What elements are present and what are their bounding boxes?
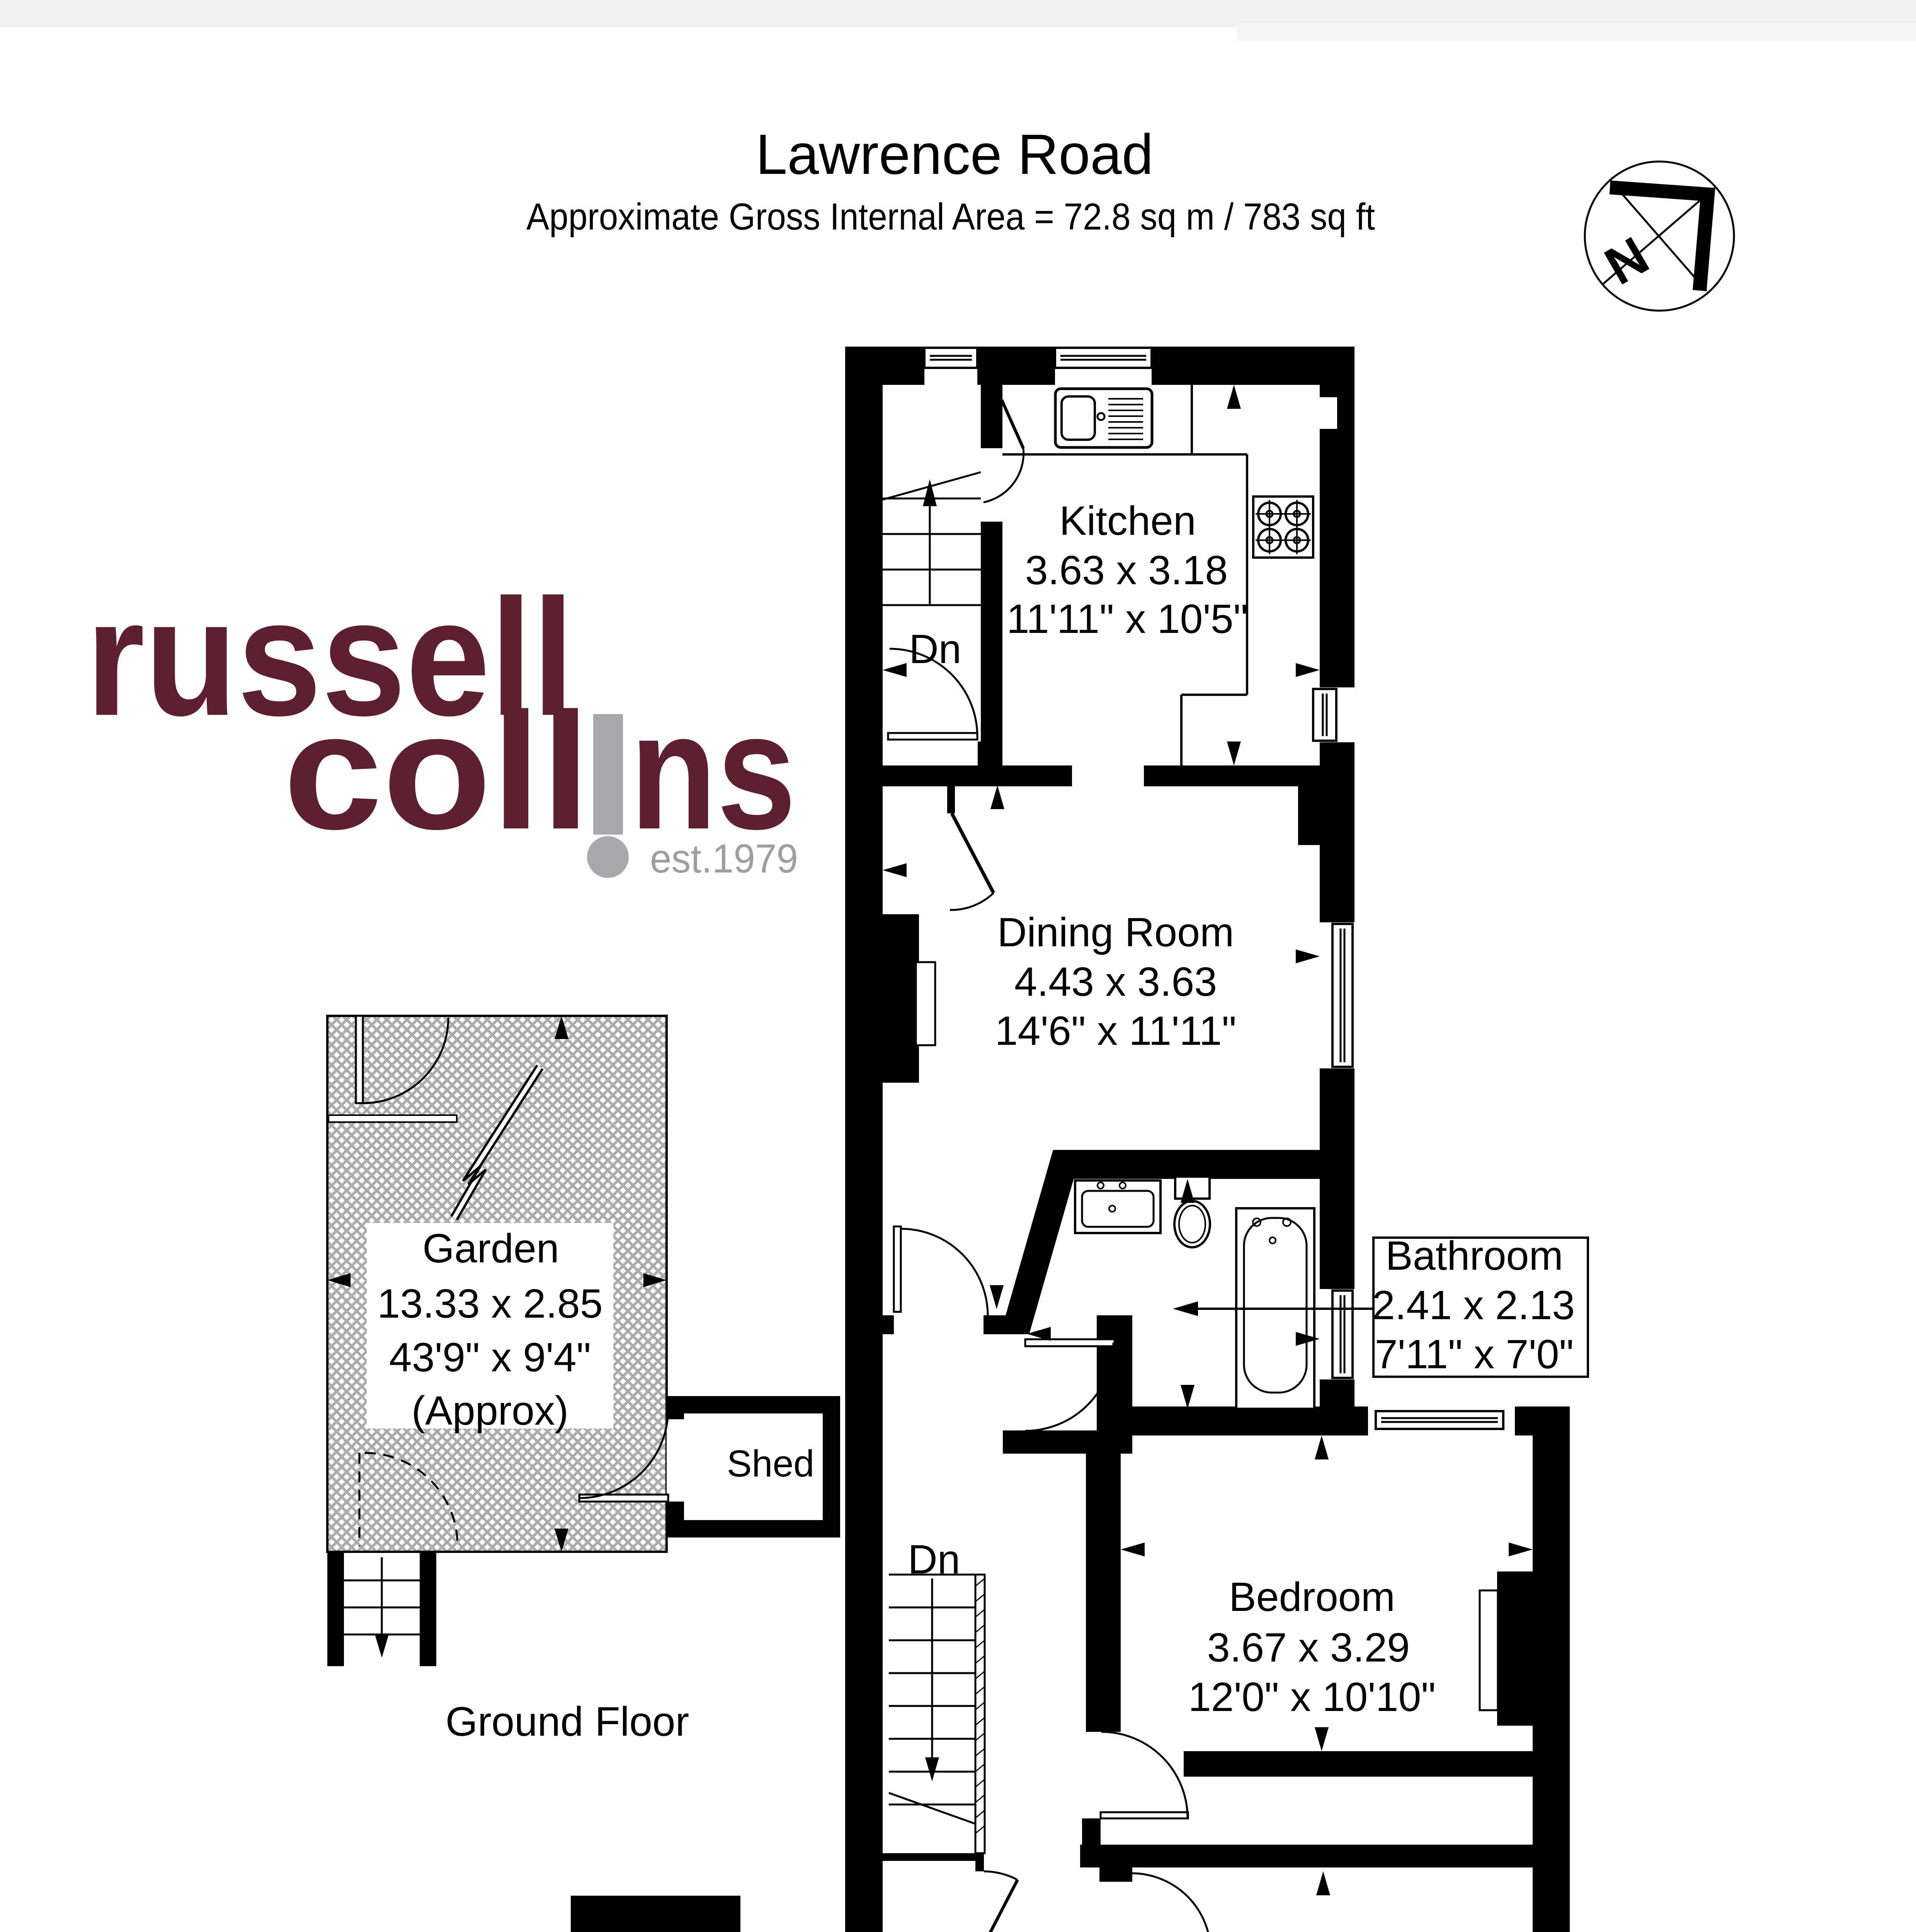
- svg-text:Kitchen: Kitchen: [1059, 498, 1196, 544]
- svg-text:2.41 x 2.13: 2.41 x 2.13: [1372, 1282, 1575, 1328]
- svg-text:Approximate Gross Internal Are: Approximate Gross Internal Area = 72.8 s…: [526, 196, 1375, 238]
- svg-text:Ground Floor: Ground Floor: [446, 1698, 689, 1745]
- svg-text:3.67 x 3.29: 3.67 x 3.29: [1207, 1625, 1410, 1670]
- svg-text:43'9" x 9'4": 43'9" x 9'4": [389, 1335, 591, 1380]
- svg-text:Shed: Shed: [727, 1442, 815, 1485]
- svg-text:Dn: Dn: [908, 1537, 960, 1582]
- svg-text:13.33 x 2.85: 13.33 x 2.85: [377, 1281, 602, 1327]
- svg-text:7'11" x 7'0": 7'11" x 7'0": [1375, 1332, 1574, 1377]
- svg-text:Bedroom: Bedroom: [1229, 1574, 1395, 1620]
- svg-text:12'0" x 10'10": 12'0" x 10'10": [1188, 1674, 1436, 1720]
- svg-text:Garden: Garden: [422, 1226, 559, 1271]
- svg-text:coll: coll: [283, 679, 590, 864]
- svg-text:Dining Room: Dining Room: [997, 910, 1234, 955]
- svg-text:Bathroom: Bathroom: [1385, 1233, 1563, 1279]
- svg-text:14'6" x 11'11": 14'6" x 11'11": [995, 1008, 1237, 1054]
- svg-text:Dn: Dn: [909, 626, 961, 672]
- svg-text:est.1979: est.1979: [650, 836, 798, 881]
- svg-text:Lawrence Road: Lawrence Road: [756, 123, 1154, 186]
- svg-text:11'11" x 10'5": 11'11" x 10'5": [1007, 596, 1248, 642]
- svg-text:(Approx): (Approx): [412, 1388, 568, 1434]
- svg-text:4.43 x 3.63: 4.43 x 3.63: [1014, 959, 1217, 1005]
- svg-text:3.63 x 3.18: 3.63 x 3.18: [1025, 548, 1228, 593]
